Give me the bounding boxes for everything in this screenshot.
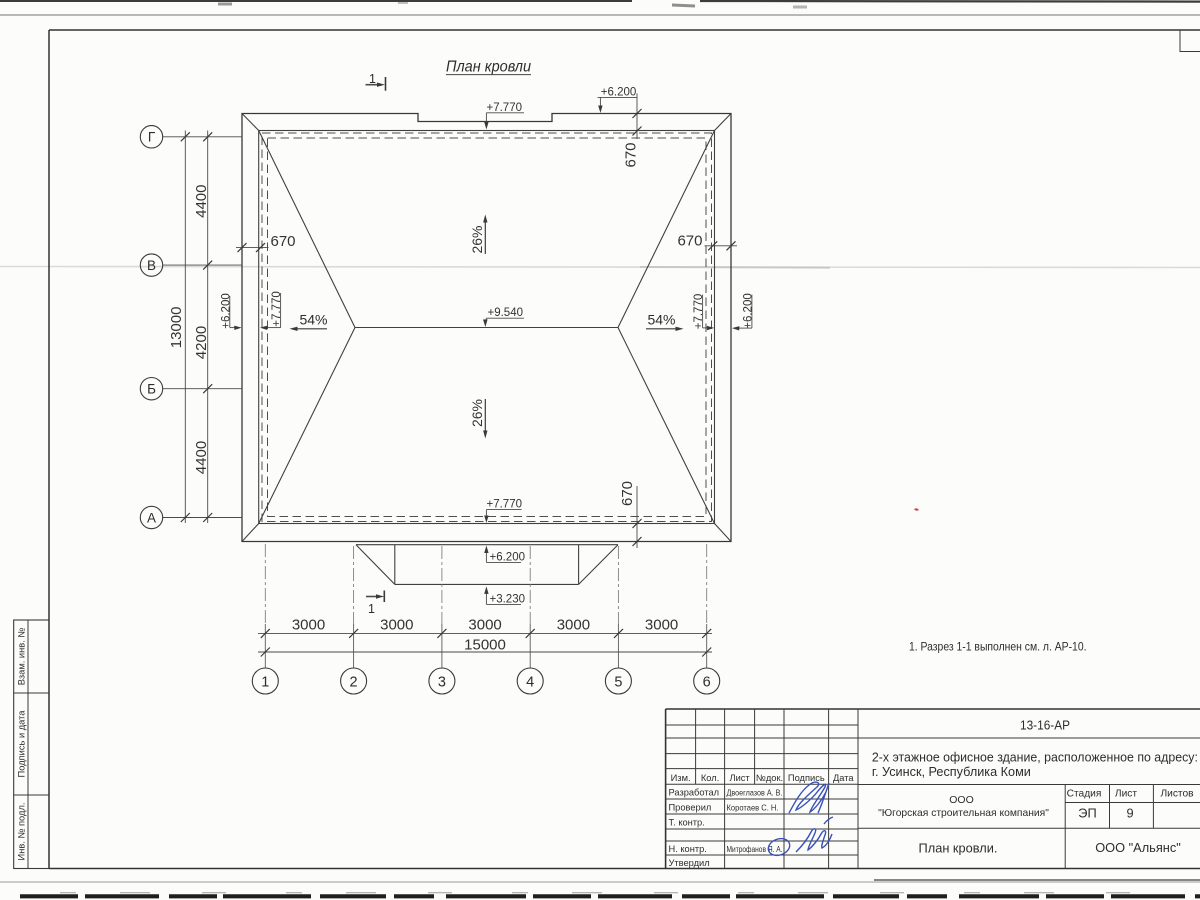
svg-text:Г: Г xyxy=(148,130,156,145)
svg-text:9: 9 xyxy=(1126,806,1133,821)
svg-text:ООО "Альянс": ООО "Альянс" xyxy=(1095,840,1181,855)
svg-text:4: 4 xyxy=(526,674,534,690)
svg-text:Лист: Лист xyxy=(729,773,750,783)
svg-text:+7.770: +7.770 xyxy=(271,291,283,327)
svg-text:670: 670 xyxy=(677,233,702,250)
svg-text:+6.200: +6.200 xyxy=(490,552,526,564)
svg-text:Подпись: Подпись xyxy=(788,773,825,783)
svg-text:3: 3 xyxy=(438,674,446,690)
svg-text:Стадия: Стадия xyxy=(1067,789,1102,800)
svg-text:+6.200: +6.200 xyxy=(220,293,232,329)
svg-text:13-16-АР: 13-16-АР xyxy=(1020,718,1070,733)
svg-text:4200: 4200 xyxy=(193,326,210,359)
svg-text:План кровли: План кровли xyxy=(446,59,531,76)
svg-text:15000: 15000 xyxy=(464,637,506,654)
svg-text:6: 6 xyxy=(703,674,711,690)
svg-text:+7.770: +7.770 xyxy=(487,102,523,114)
svg-text:+3.230: +3.230 xyxy=(490,594,526,606)
svg-text:Проверил: Проверил xyxy=(669,803,712,813)
svg-text:Изм.: Изм. xyxy=(671,773,691,783)
svg-text:+9.540: +9.540 xyxy=(488,307,524,319)
svg-text:Взам. инв. №: Взам. инв. № xyxy=(17,628,27,686)
svg-text:№док.: №док. xyxy=(756,773,783,783)
svg-text:Разработал: Разработал xyxy=(669,788,720,798)
svg-text:26%: 26% xyxy=(469,399,485,427)
svg-text:3000: 3000 xyxy=(557,617,590,634)
svg-text:3000: 3000 xyxy=(292,617,325,634)
svg-text:В: В xyxy=(147,258,156,273)
svg-text:670: 670 xyxy=(623,142,640,167)
svg-text:4400: 4400 xyxy=(193,441,210,474)
svg-text:670: 670 xyxy=(271,233,296,250)
svg-text:54%: 54% xyxy=(647,312,675,328)
svg-text:Лист: Лист xyxy=(1115,789,1137,800)
svg-text:Митрофанов Я. А.: Митрофанов Я. А. xyxy=(727,844,783,854)
svg-text:3000: 3000 xyxy=(468,617,501,634)
svg-text:Б: Б xyxy=(147,382,156,397)
svg-text:5: 5 xyxy=(614,674,622,690)
svg-text:+7.770: +7.770 xyxy=(693,294,705,330)
svg-text:Дата: Дата xyxy=(833,773,854,783)
svg-text:Двоеглазов А. В.: Двоеглазов А. В. xyxy=(727,787,783,797)
svg-text:Подпись и дата: Подпись и дата xyxy=(17,710,27,778)
svg-text:670: 670 xyxy=(619,481,636,506)
svg-text:1: 1 xyxy=(368,602,375,616)
svg-text:4400: 4400 xyxy=(193,185,210,218)
svg-text:Н. контр.: Н. контр. xyxy=(669,844,707,854)
svg-text:Кол.: Кол. xyxy=(701,773,719,783)
svg-text:Коротаев С. Н.: Коротаев С. Н. xyxy=(727,803,779,813)
svg-text:1: 1 xyxy=(261,674,269,690)
svg-text:1. Разрез 1-1 выполнен см. л.: 1. Разрез 1-1 выполнен см. л. АР-10. xyxy=(909,640,1087,654)
svg-text:"Югорская строительная компани: "Югорская строительная компания" xyxy=(878,808,1049,819)
svg-text:13000: 13000 xyxy=(168,307,185,349)
svg-text:54%: 54% xyxy=(299,312,327,328)
svg-text:3000: 3000 xyxy=(380,617,413,634)
svg-text:+6.200: +6.200 xyxy=(742,293,754,329)
svg-text:г. Усинск, Республика Коми: г. Усинск, Республика Коми xyxy=(872,764,1031,779)
svg-text:План кровли.: План кровли. xyxy=(919,840,998,855)
svg-text:А: А xyxy=(147,510,156,525)
svg-text:+6.200: +6.200 xyxy=(601,86,637,98)
svg-text:Т. контр.: Т. контр. xyxy=(669,818,705,828)
svg-text:ООО: ООО xyxy=(949,794,974,806)
svg-text:+7.770: +7.770 xyxy=(487,499,523,511)
svg-text:Листов: Листов xyxy=(1160,789,1193,800)
svg-text:3000: 3000 xyxy=(645,617,678,634)
svg-text:Утвердил: Утвердил xyxy=(669,858,710,868)
svg-text:Инв. № подл.: Инв. № подл. xyxy=(17,803,27,861)
svg-text:26%: 26% xyxy=(469,225,485,253)
svg-text:2-х этажное офисное здание, ра: 2-х этажное офисное здание, расположенно… xyxy=(872,750,1198,765)
svg-text:2: 2 xyxy=(350,674,358,690)
svg-text:ЭП: ЭП xyxy=(1078,806,1096,821)
